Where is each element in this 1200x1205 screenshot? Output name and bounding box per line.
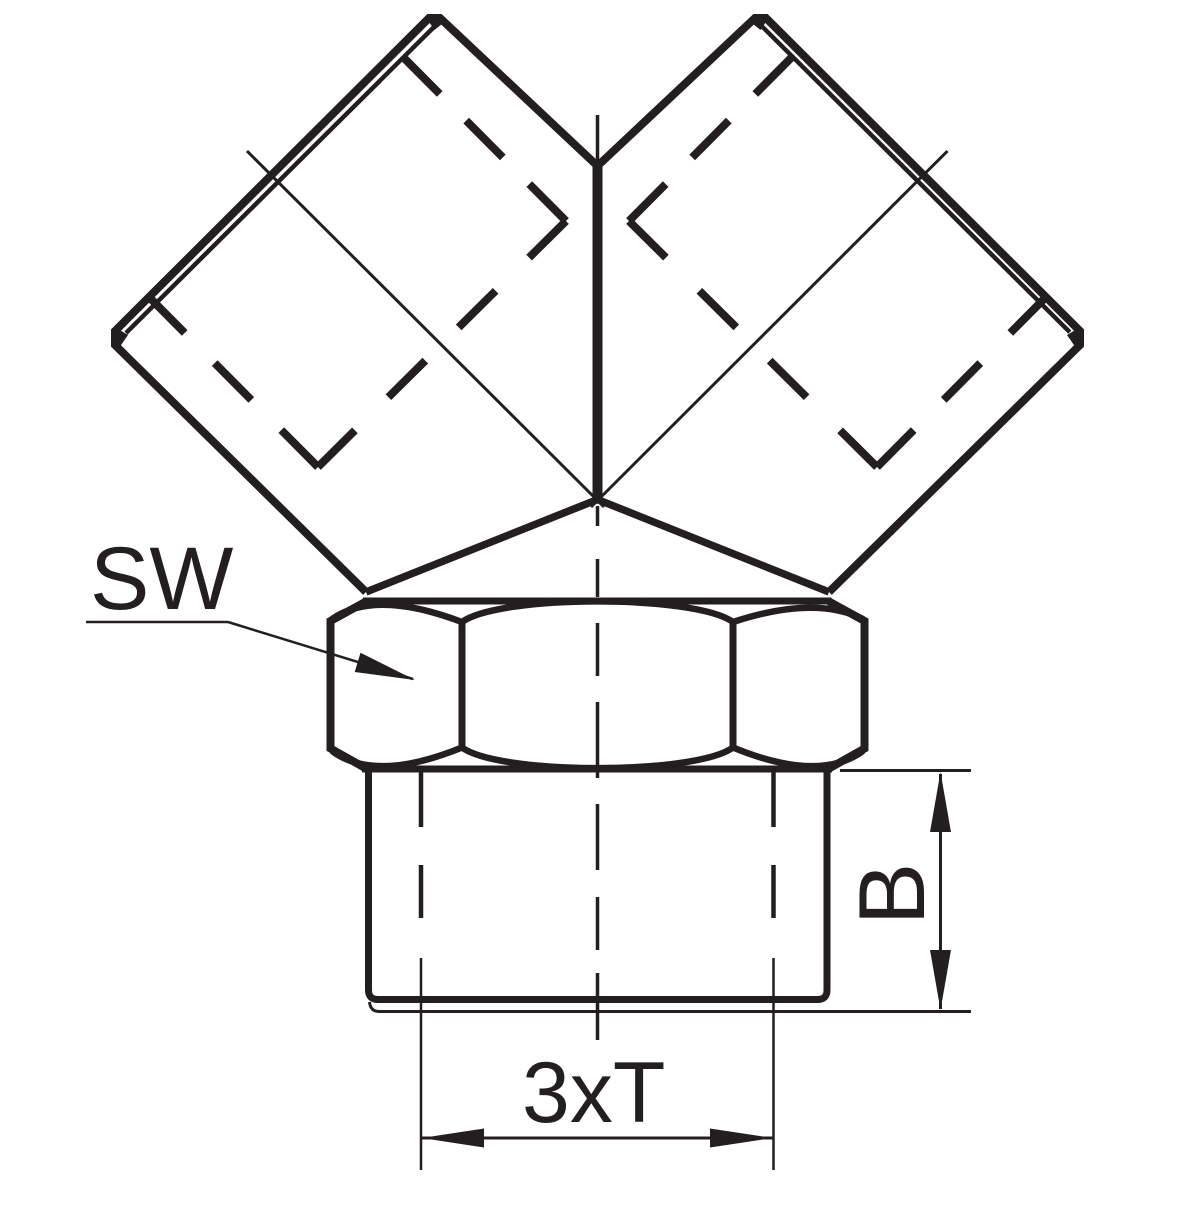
svg-text:SW: SW — [90, 528, 233, 628]
svg-text:3xT: 3xT — [522, 1045, 665, 1141]
svg-text:B: B — [839, 863, 944, 926]
